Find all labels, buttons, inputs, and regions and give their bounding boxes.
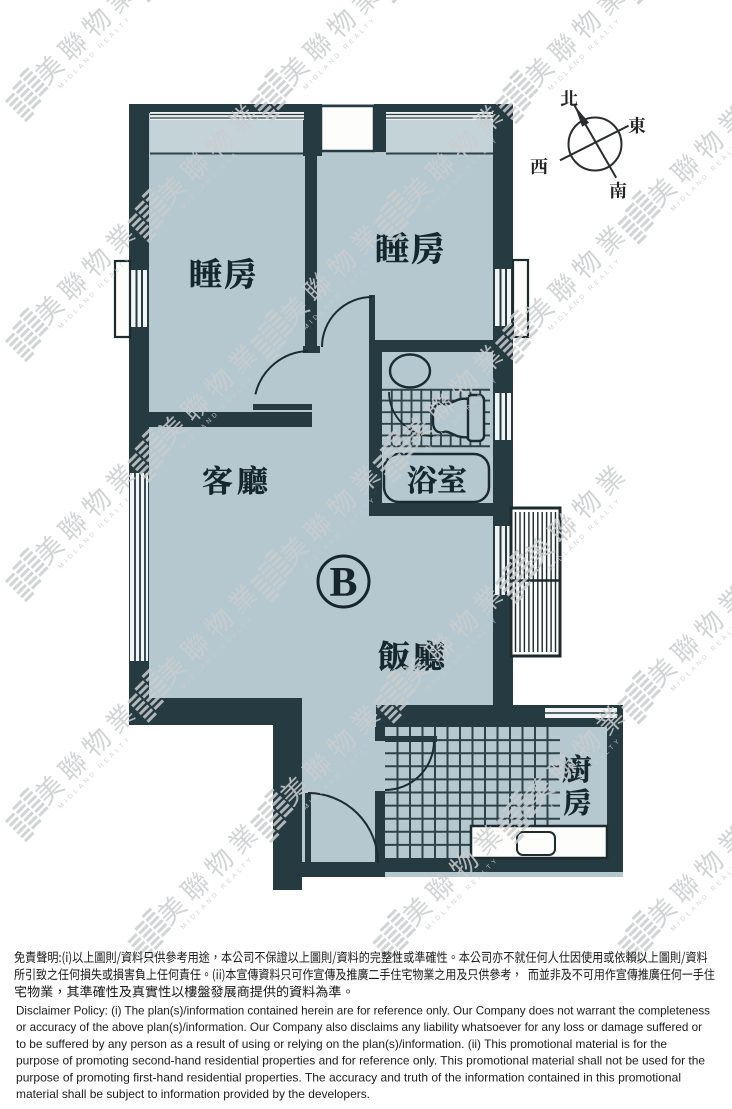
svg-text:to be suffered by any person a: to be suffered by any person as a result… [16, 1037, 667, 1051]
svg-text:material shall be subject to i: material shall be subject to information… [16, 1087, 370, 1101]
svg-text:or accuracy of the above plan(: or accuracy of the above plan(s)/informa… [16, 1020, 702, 1034]
svg-text:B: B [329, 560, 357, 606]
svg-text:purpose of promoting second-ha: purpose of promoting second-hand residen… [16, 1054, 705, 1068]
svg-text:purpose of promoting first-han: purpose of promoting first-hand resident… [16, 1070, 681, 1084]
svg-text:Disclaimer Policy: (i) The pla: Disclaimer Policy: (i) The plan(s)/infor… [16, 1004, 710, 1018]
